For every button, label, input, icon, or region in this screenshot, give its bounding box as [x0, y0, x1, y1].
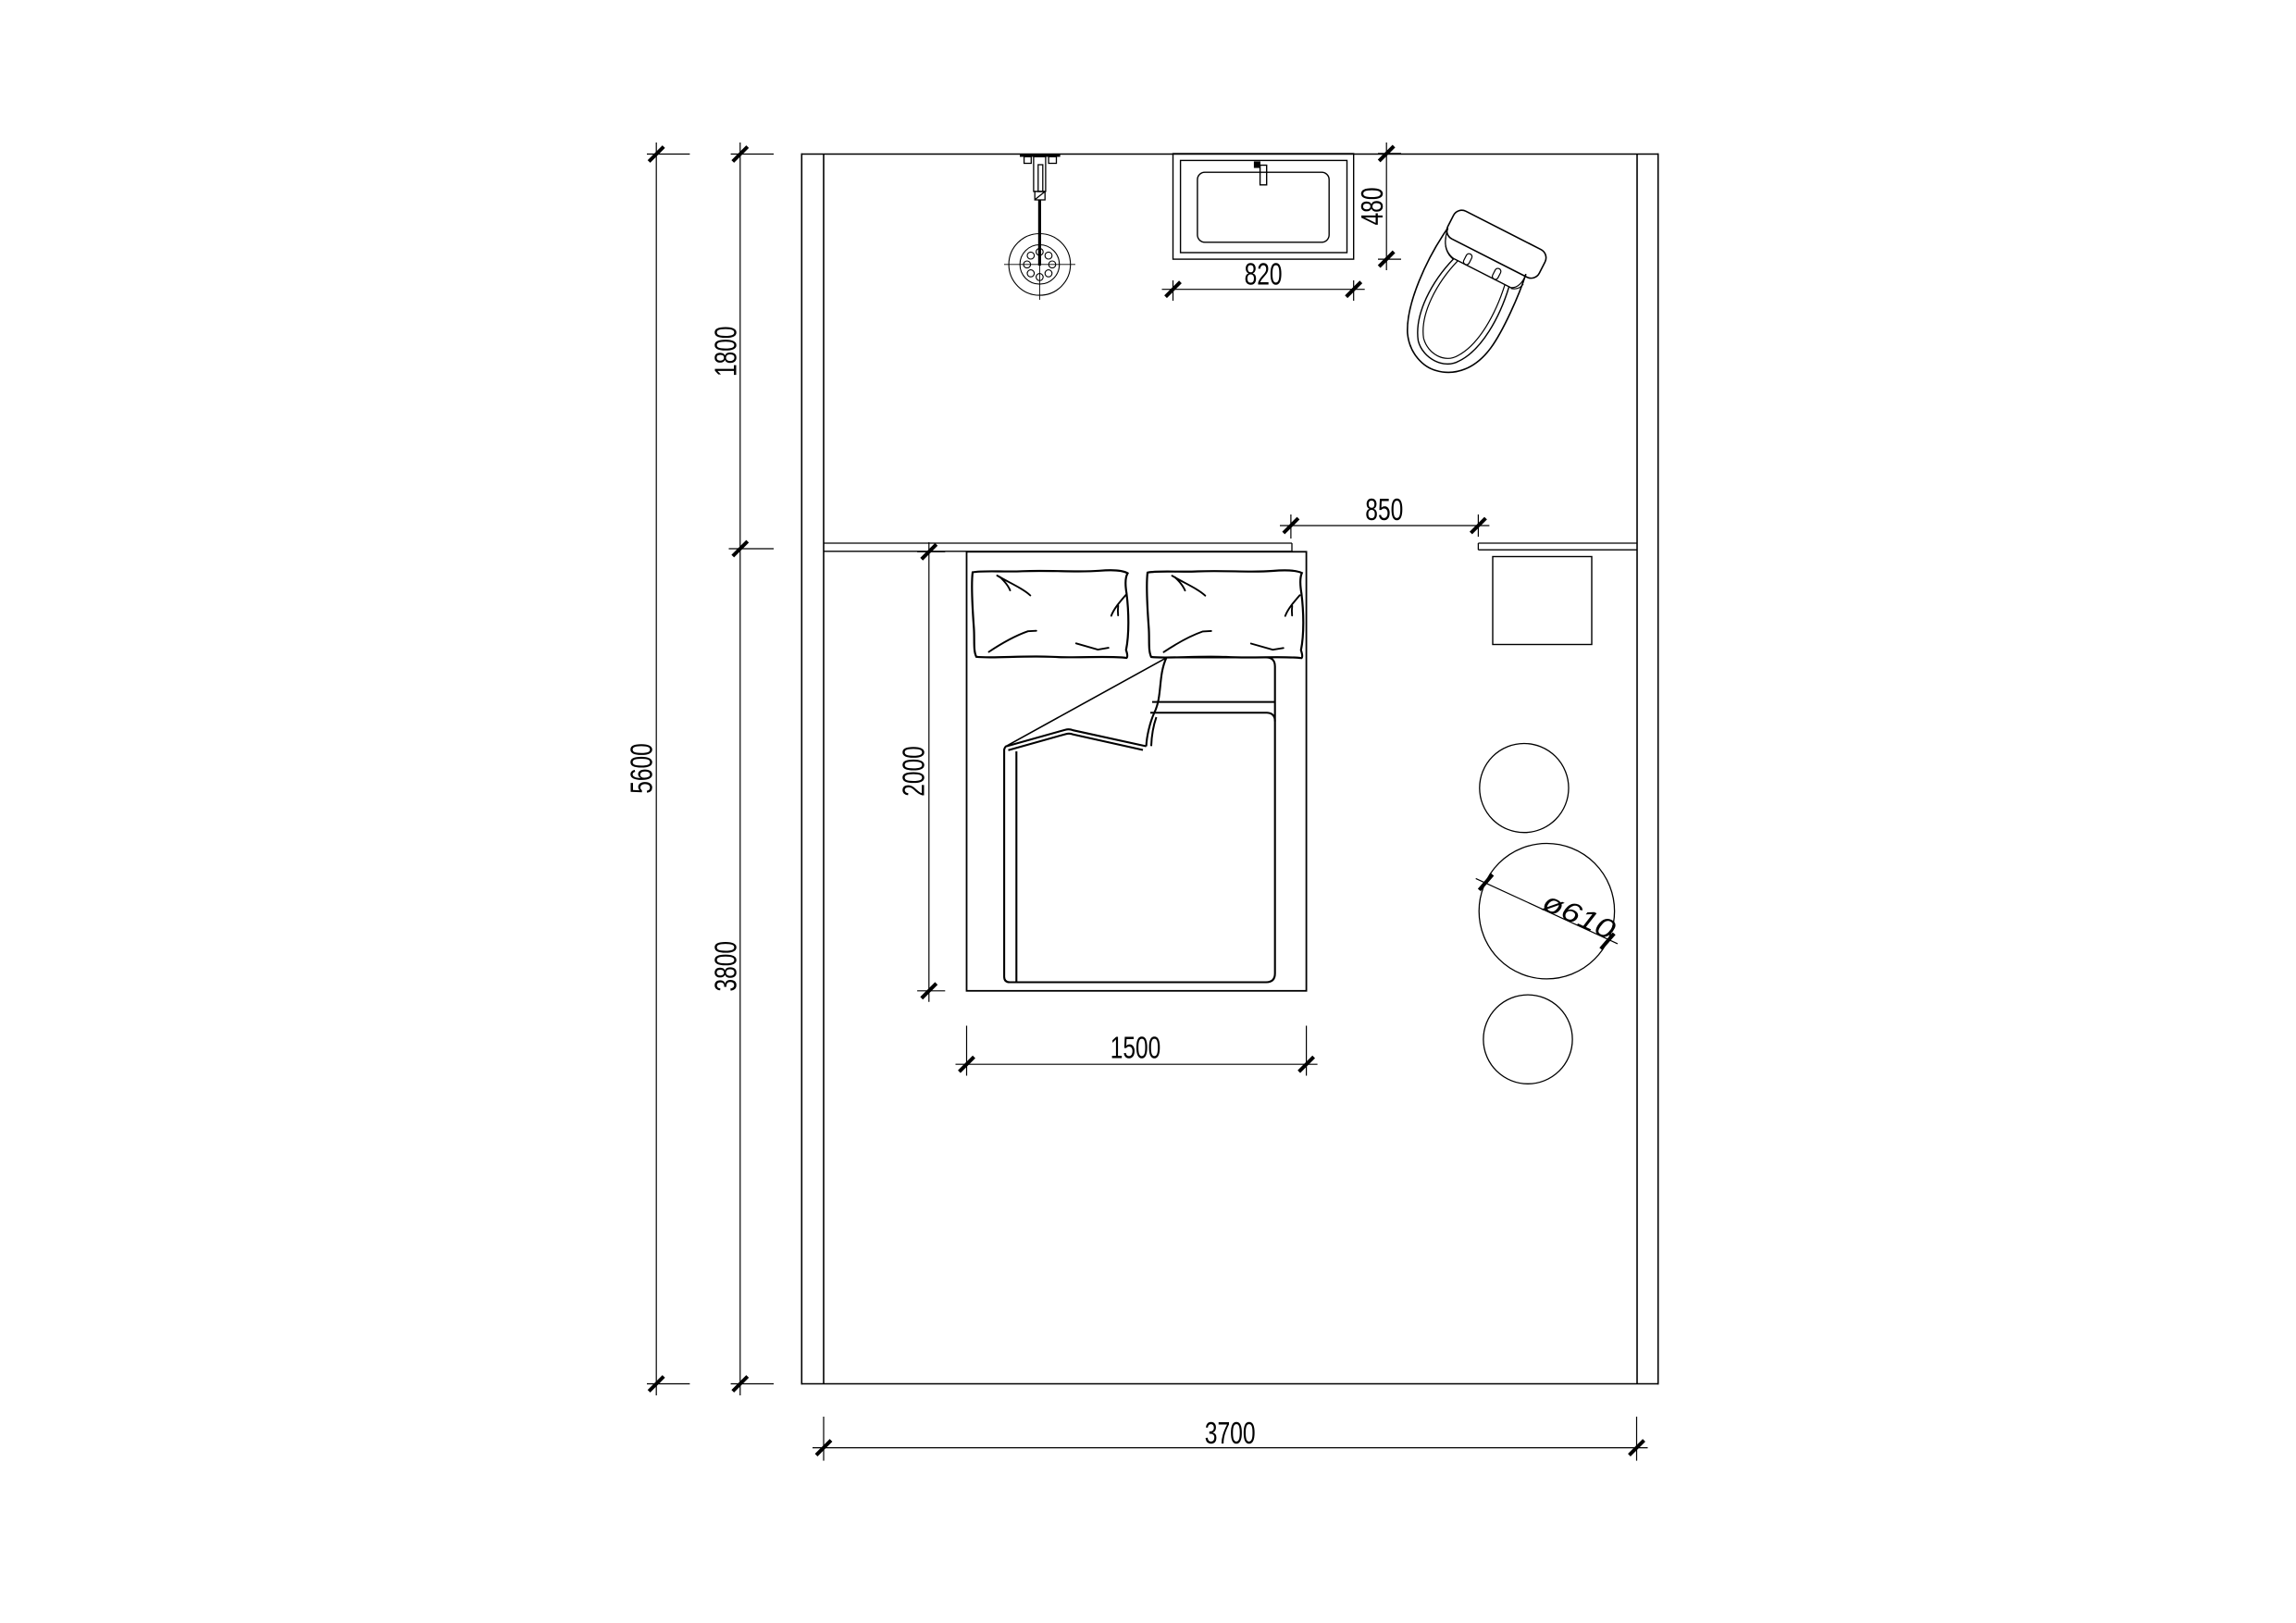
- svg-text:820: 820: [1245, 257, 1283, 291]
- svg-text:2000: 2000: [897, 746, 931, 797]
- svg-text:1800: 1800: [708, 327, 742, 378]
- svg-text:1500: 1500: [1111, 1031, 1161, 1065]
- svg-text:480: 480: [1355, 188, 1389, 226]
- svg-text:5600: 5600: [625, 743, 659, 794]
- svg-text:850: 850: [1365, 492, 1403, 527]
- svg-text:3800: 3800: [708, 941, 742, 992]
- svg-text:3700: 3700: [1205, 1416, 1256, 1450]
